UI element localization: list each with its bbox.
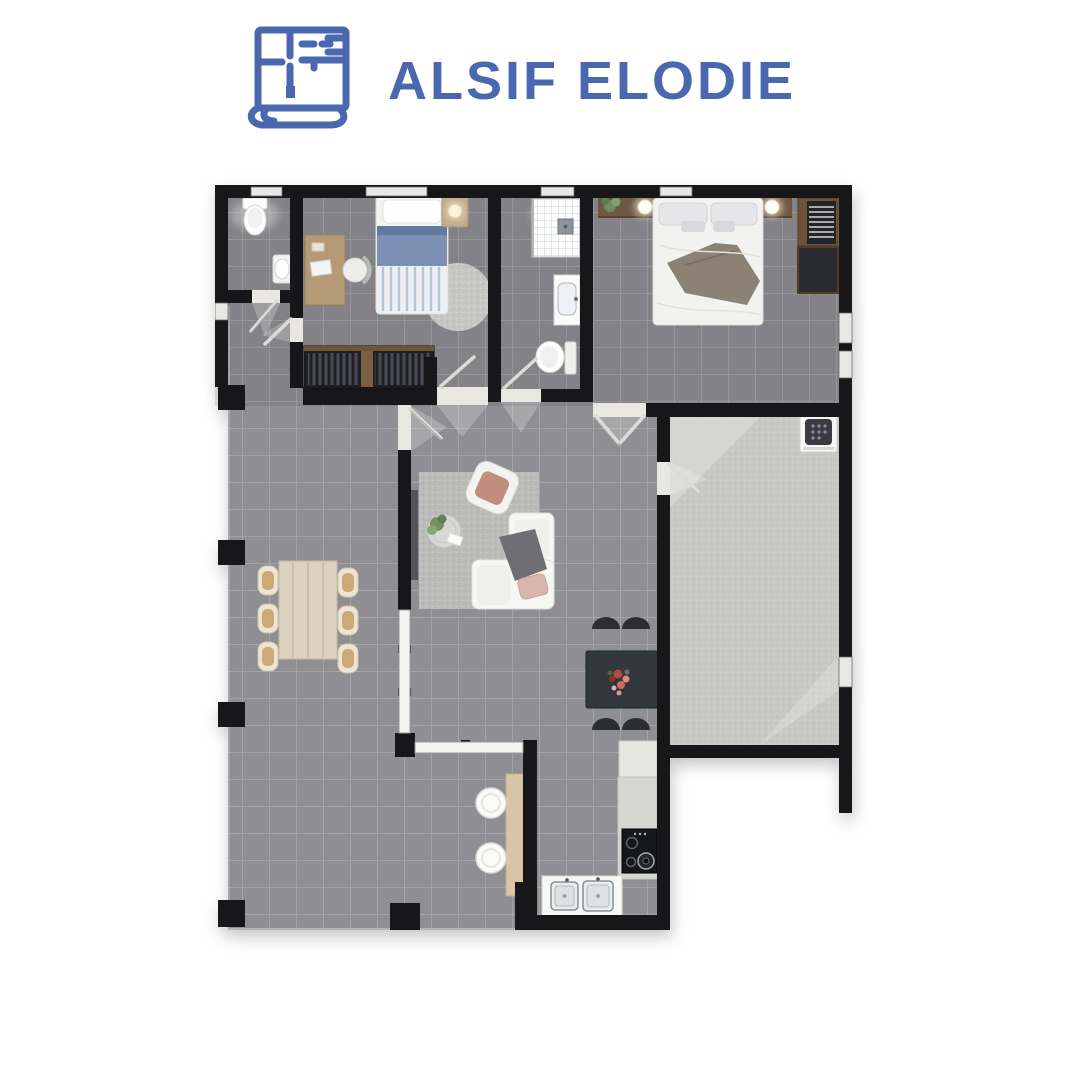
- window-icon: [215, 303, 228, 320]
- tv-panel: [411, 490, 418, 580]
- blueprint-scroll-icon: [244, 22, 374, 152]
- floor-plan: [215, 185, 855, 945]
- shower: [532, 199, 580, 257]
- page: ALSIF ELODIE: [0, 0, 1080, 1080]
- bedside-table: [442, 197, 468, 227]
- desk-chair: [343, 257, 370, 283]
- closet: [798, 198, 838, 293]
- window-icon: [251, 187, 282, 196]
- window-icon: [839, 313, 852, 343]
- pillar: [218, 900, 245, 927]
- wardrobe: [304, 346, 434, 388]
- vanity-sink-icon: [554, 275, 580, 325]
- pillar: [390, 903, 420, 930]
- room-garage: [800, 415, 837, 452]
- single-bed: [376, 196, 448, 314]
- window-icon: [839, 657, 852, 687]
- room-dining-area: [258, 561, 358, 673]
- toilet-icon: [243, 198, 267, 235]
- toilet-icon: [536, 342, 576, 375]
- pillar: [218, 540, 245, 565]
- washing-machine-icon: [800, 415, 837, 452]
- fridge: [619, 741, 657, 777]
- double-bed: [653, 198, 763, 325]
- bar-stool-icon: [476, 788, 506, 818]
- window-icon: [839, 351, 852, 378]
- pillar: [218, 385, 245, 410]
- window-icon: [366, 187, 427, 196]
- brand-name: ALSIF ELODIE: [388, 48, 796, 114]
- bedside-lamp-icon: [638, 200, 652, 214]
- stove-icon: [622, 829, 657, 873]
- double-sink-icon: [542, 876, 622, 917]
- window-icon: [541, 187, 574, 196]
- dining-table: [279, 561, 337, 659]
- hand-basin-icon: [273, 255, 292, 283]
- bar-stool-icon: [476, 843, 506, 873]
- bedside-lamp-icon: [765, 200, 779, 214]
- breakfast-bar: [506, 774, 523, 896]
- window-icon: [660, 187, 692, 196]
- pillar: [218, 702, 245, 727]
- desk: [305, 235, 345, 305]
